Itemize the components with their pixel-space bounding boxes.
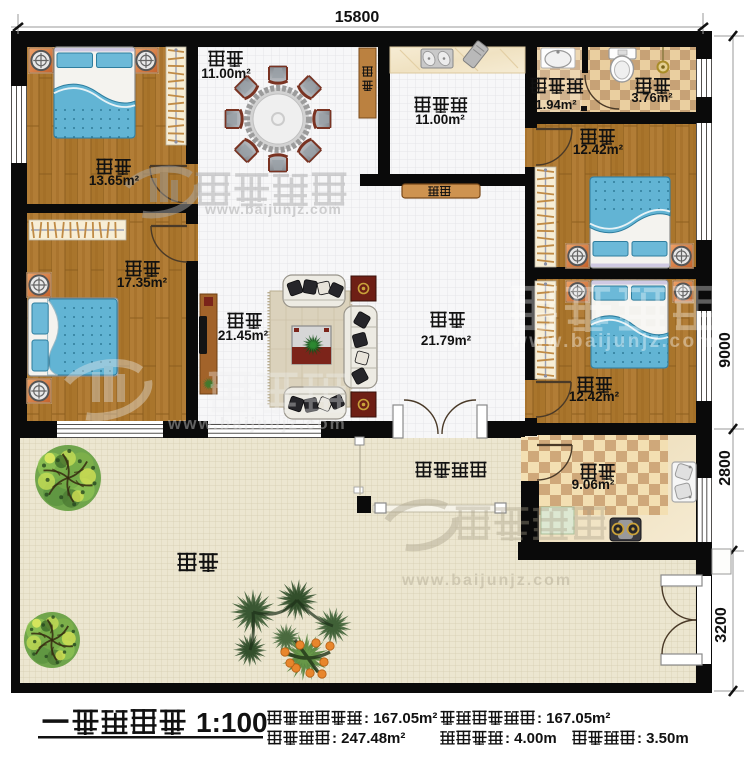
svg-text:9.06m²: 9.06m²	[572, 477, 615, 492]
svg-text:12.42m²: 12.42m²	[569, 389, 620, 404]
svg-text:11.00m²: 11.00m²	[415, 112, 465, 127]
svg-text:3.76m²: 3.76m²	[631, 90, 673, 105]
svg-text:www.baijunjz.com: www.baijunjz.com	[401, 572, 572, 589]
svg-text:3200: 3200	[713, 607, 730, 643]
svg-text:2800: 2800	[717, 450, 734, 486]
svg-text:21.79m²: 21.79m²	[421, 333, 472, 348]
svg-text:www.baijunjz.com: www.baijunjz.com	[511, 331, 716, 352]
svg-text:: 4.00m: : 4.00m	[505, 730, 557, 747]
svg-text:17.35m²: 17.35m²	[117, 275, 168, 290]
svg-text:1.94m²: 1.94m²	[535, 97, 577, 112]
svg-text:: 3.50m: : 3.50m	[637, 730, 689, 747]
svg-text:www.baijunjz.com: www.baijunjz.com	[167, 414, 347, 433]
svg-text:: 247.48m²: : 247.48m²	[332, 730, 405, 747]
svg-text:12.42m²: 12.42m²	[573, 142, 624, 157]
svg-text:: 167.05m²: : 167.05m²	[364, 710, 437, 727]
svg-text:1:100: 1:100	[196, 707, 268, 738]
svg-text:: 167.05m²: : 167.05m²	[537, 710, 610, 727]
svg-text:21.45m²: 21.45m²	[218, 328, 269, 343]
svg-text:www.baijunjz.com: www.baijunjz.com	[204, 201, 342, 217]
svg-text:15800: 15800	[335, 9, 380, 26]
svg-text:9000: 9000	[717, 332, 734, 368]
svg-text:11.00m²: 11.00m²	[201, 66, 251, 81]
svg-text:13.65m²: 13.65m²	[89, 173, 140, 188]
